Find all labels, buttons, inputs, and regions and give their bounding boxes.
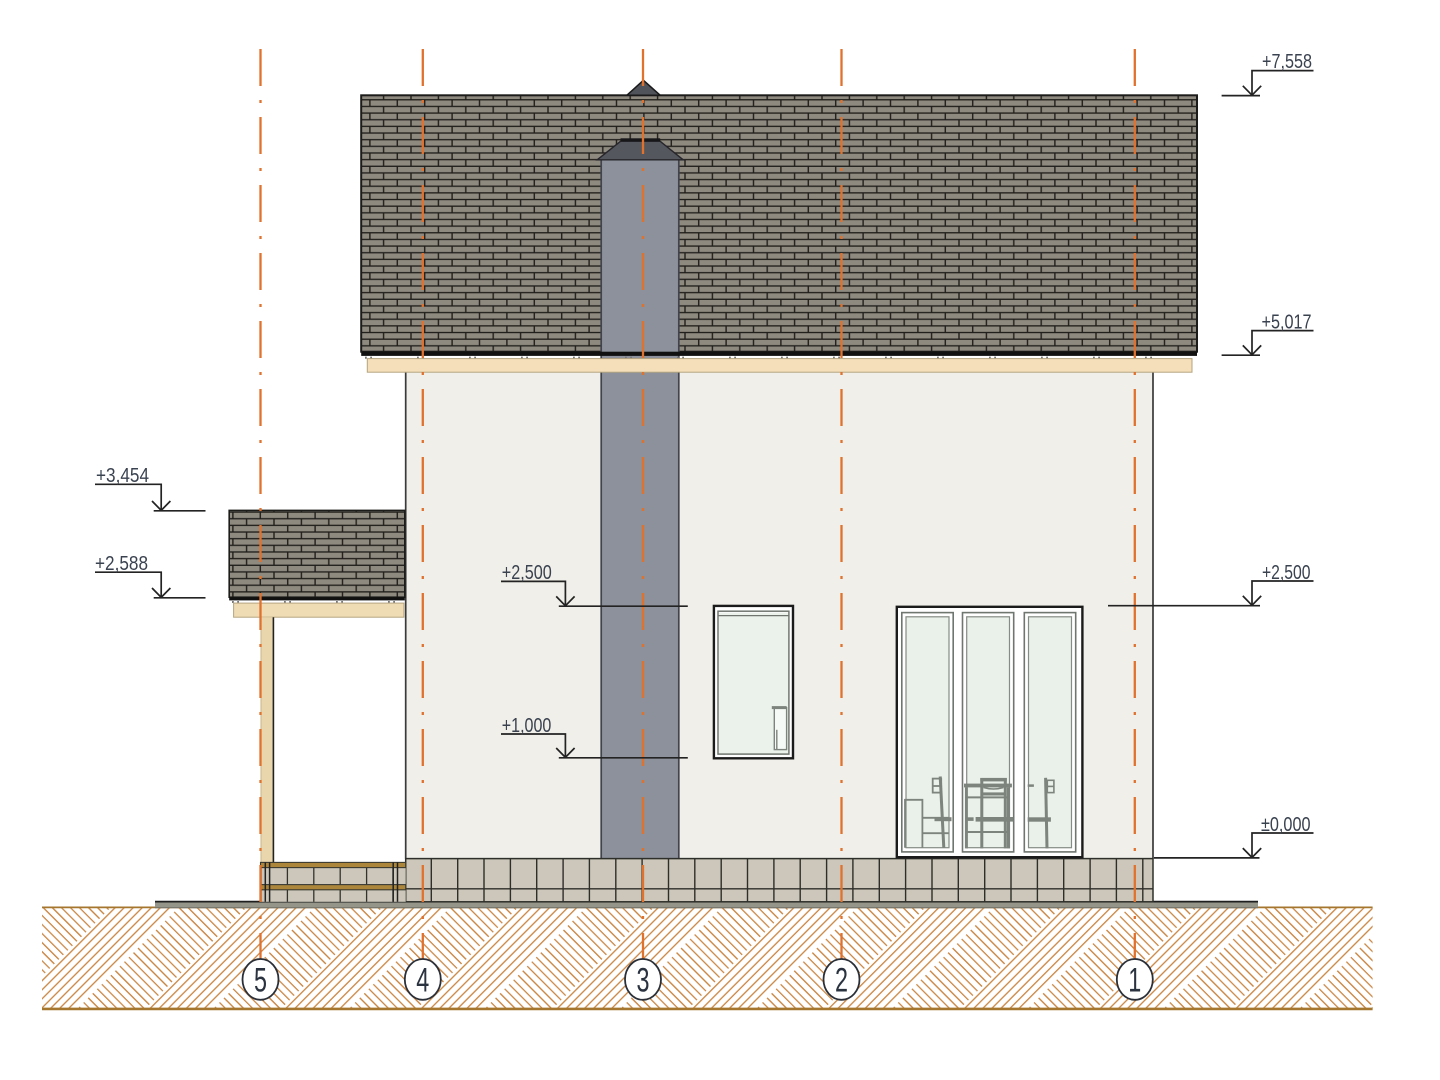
svg-text:4: 4 (416, 962, 429, 1000)
svg-text:+2,500: +2,500 (1262, 561, 1311, 584)
svg-text:+2,500: +2,500 (502, 561, 552, 584)
svg-text:3: 3 (637, 962, 650, 1000)
svg-text:2: 2 (835, 962, 848, 1000)
svg-text:±0,000: ±0,000 (1261, 813, 1311, 836)
svg-text:5: 5 (254, 962, 267, 1000)
svg-text:+7,558: +7,558 (1262, 50, 1312, 73)
svg-text:1: 1 (1128, 962, 1141, 1000)
svg-text:+3,454: +3,454 (96, 464, 149, 487)
svg-text:+2,588: +2,588 (95, 552, 148, 575)
svg-text:+5,017: +5,017 (1262, 310, 1312, 333)
svg-text:+1,000: +1,000 (502, 714, 552, 737)
